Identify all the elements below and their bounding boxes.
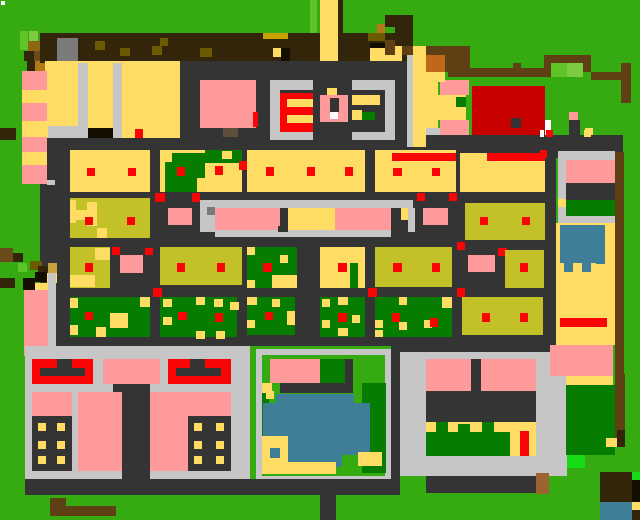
map-rect [215, 230, 391, 237]
map-rect [338, 263, 347, 272]
map-rect [440, 80, 469, 95]
map-rect [27, 61, 35, 71]
map-rect [216, 441, 224, 449]
map-rect [621, 63, 631, 103]
map-rect [194, 423, 202, 431]
map-rect [566, 183, 615, 200]
map-rect [392, 153, 456, 161]
map-rect [78, 392, 122, 471]
map-rect [270, 132, 313, 140]
map-rect [385, 15, 413, 27]
monument-left [270, 80, 313, 90]
map-rect [200, 48, 212, 57]
map-rect [57, 423, 65, 431]
map-rect [393, 263, 402, 272]
map-rect [569, 120, 580, 135]
map-rect [408, 208, 415, 232]
map-rect [263, 33, 288, 39]
map-rect [338, 297, 348, 305]
map-rect [50, 498, 66, 516]
map-rect [436, 422, 448, 432]
map-rect [546, 130, 553, 137]
south-road [320, 491, 336, 520]
map-rect [567, 455, 585, 468]
map-rect [550, 345, 613, 376]
map-rect [263, 263, 272, 272]
map-rect [448, 68, 546, 77]
map-rect [178, 312, 187, 320]
block [160, 247, 242, 285]
map-rect [399, 322, 407, 330]
map-rect [350, 263, 358, 288]
map-rect [287, 115, 313, 123]
map-rect [551, 63, 567, 77]
map-rect [145, 248, 153, 255]
map-rect [540, 150, 547, 158]
map-rect [368, 33, 385, 41]
map-rect [110, 313, 128, 328]
map-rect [375, 320, 383, 328]
map-rect [247, 320, 255, 328]
map-rect [216, 331, 225, 339]
map-rect [352, 95, 380, 105]
map-rect [217, 263, 225, 272]
map-rect [38, 456, 46, 464]
block [375, 297, 452, 337]
map-rect [430, 318, 438, 327]
map-rect [520, 313, 528, 322]
map-rect [0, 128, 16, 140]
map-rect [48, 263, 57, 273]
map-rect [456, 97, 466, 107]
map-rect [564, 263, 573, 272]
map-rect [24, 51, 34, 61]
map-rect [135, 129, 143, 138]
map-rect [28, 41, 40, 51]
map-rect [48, 126, 78, 138]
map-rect [22, 152, 47, 165]
map-rect [70, 298, 78, 308]
map-rect [322, 299, 330, 307]
map-rect [270, 90, 280, 132]
map-rect [0, 248, 13, 262]
map-rect [265, 312, 273, 320]
map-rect [606, 438, 617, 447]
map-rect [38, 441, 46, 449]
map-rect [120, 255, 143, 273]
map-rect [426, 359, 471, 391]
map-rect [85, 312, 93, 320]
map-rect [584, 130, 591, 137]
map-rect [85, 263, 93, 272]
map-rect [566, 200, 615, 216]
map-rect [520, 431, 529, 456]
map-rect [230, 302, 239, 310]
map-rect [393, 168, 402, 176]
map-rect [632, 472, 640, 480]
map-rect [194, 456, 202, 464]
map-rect [247, 297, 257, 305]
map-dot [1, 1, 5, 5]
map-rect [458, 424, 470, 432]
map-rect [385, 40, 395, 55]
map-rect [223, 128, 238, 137]
map-rect [140, 297, 150, 307]
map-rect [307, 167, 315, 176]
map-rect [426, 391, 536, 422]
map-rect [188, 392, 231, 416]
map-rect [617, 430, 625, 447]
map-rect [432, 168, 440, 176]
map-rect [57, 441, 65, 449]
map-rect [70, 275, 95, 287]
map-rect [481, 359, 536, 391]
map-rect [270, 448, 280, 458]
map-rect [513, 63, 521, 70]
map-rect [596, 255, 605, 264]
map-rect [432, 263, 440, 272]
map-rect [482, 422, 494, 432]
map-rect [222, 151, 232, 159]
map-rect [78, 63, 88, 138]
map-rect [163, 317, 172, 325]
map-rect [569, 112, 578, 120]
map-rect [128, 168, 136, 176]
map-rect [127, 217, 135, 225]
map-rect [20, 31, 28, 41]
map-rect [57, 456, 65, 464]
map-rect [320, 359, 345, 383]
map-rect [95, 41, 105, 50]
west-strip [22, 71, 47, 90]
map-rect [103, 359, 160, 384]
map-rect [29, 31, 38, 41]
east-road [413, 46, 426, 147]
map-rect [266, 167, 274, 176]
map-rect [322, 320, 330, 328]
map-rect [216, 423, 224, 431]
map-rect [70, 325, 78, 335]
map-rect [457, 242, 465, 250]
city-map[interactable] [0, 0, 640, 520]
map-rect [266, 391, 274, 399]
map-rect [583, 63, 591, 72]
map-rect [358, 452, 382, 466]
monument-right [352, 80, 395, 90]
map-rect [352, 315, 360, 323]
map-rect [278, 226, 288, 232]
map-rect [177, 167, 185, 176]
map-rect [113, 63, 122, 138]
map-rect [487, 153, 545, 161]
map-rect [23, 278, 35, 290]
map-rect [215, 208, 280, 232]
map-rect [38, 423, 46, 431]
block [462, 297, 543, 335]
map-rect [582, 263, 591, 272]
map-rect [97, 228, 107, 238]
map-rect [253, 112, 258, 127]
map-rect [22, 121, 47, 137]
map-rect [122, 384, 150, 479]
map-rect [40, 368, 85, 376]
map-rect [207, 207, 215, 215]
map-rect [247, 247, 255, 255]
map-rect [352, 132, 395, 140]
map-rect [112, 247, 120, 255]
map-rect [567, 63, 583, 77]
map-rect [442, 297, 452, 308]
map-rect [88, 128, 113, 138]
map-rect [160, 38, 168, 46]
plaza-building [200, 80, 256, 128]
map-rect [0, 278, 15, 288]
map-rect [310, 0, 317, 33]
map-rect [558, 199, 566, 207]
map-rect [192, 193, 200, 202]
map-rect [196, 331, 205, 339]
block [465, 203, 545, 240]
map-rect [85, 217, 93, 225]
map-rect [330, 98, 339, 112]
map-rect [57, 359, 72, 368]
map-rect [96, 327, 106, 337]
map-rect [280, 255, 288, 263]
map-rect [215, 313, 223, 322]
red-building [472, 86, 545, 135]
gray-building [57, 38, 78, 63]
map-rect [377, 24, 385, 33]
map-rect [155, 193, 165, 202]
map-rect [288, 208, 335, 230]
map-rect [190, 359, 205, 368]
map-rect [335, 208, 391, 232]
map-rect [196, 297, 205, 305]
map-rect [330, 112, 338, 119]
map-rect [35, 272, 47, 282]
map-rect [468, 255, 495, 272]
map-rect [280, 383, 353, 393]
map-rect [471, 359, 481, 391]
map-rect [288, 462, 336, 474]
map-rect [362, 112, 375, 120]
map-rect [168, 208, 192, 225]
map-rect [423, 208, 448, 225]
map-rect [152, 46, 162, 55]
map-rect [391, 346, 400, 493]
map-rect [632, 480, 640, 502]
map-rect [520, 263, 528, 272]
map-rect [25, 479, 400, 495]
stadium [200, 200, 413, 208]
map-rect [482, 313, 490, 322]
map-rect [32, 392, 72, 416]
tree-trunk [536, 473, 549, 494]
map-rect [457, 288, 465, 297]
map-rect [287, 99, 313, 107]
map-rect [480, 217, 488, 225]
north-road [320, 0, 338, 63]
map-rect [272, 275, 297, 288]
map-rect [368, 288, 377, 297]
block [70, 150, 150, 192]
map-rect [426, 476, 548, 493]
map-rect [239, 161, 247, 170]
map-rect [22, 90, 47, 103]
map-rect [247, 280, 255, 288]
map-rect [600, 502, 632, 520]
map-rect [370, 43, 385, 48]
map-rect [163, 299, 172, 307]
map-rect [18, 263, 27, 272]
map-rect [214, 299, 223, 307]
map-rect [273, 48, 281, 57]
tree-line [615, 152, 624, 374]
map-rect [197, 178, 207, 192]
map-rect [392, 313, 400, 322]
map-rect [120, 48, 130, 56]
map-rect [13, 253, 23, 262]
map-rect [48, 273, 56, 356]
map-rect [426, 432, 510, 456]
map-rect [22, 165, 47, 184]
map-rect [522, 217, 530, 225]
map-rect [449, 193, 457, 201]
map-rect [385, 90, 395, 132]
map-rect [270, 359, 320, 383]
map-rect [440, 120, 469, 135]
map-rect [401, 208, 408, 220]
map-rect [391, 226, 401, 232]
map-rect [600, 472, 632, 502]
map-rect [176, 368, 221, 376]
map-rect [215, 166, 223, 175]
map-rect [375, 330, 383, 337]
map-rect [113, 384, 150, 392]
map-rect [66, 506, 116, 516]
map-rect [395, 27, 413, 35]
map-rect [352, 110, 362, 120]
map-rect [22, 103, 47, 121]
map-rect [22, 137, 47, 152]
map-rect [216, 456, 224, 464]
door [511, 118, 521, 128]
map-rect [194, 441, 202, 449]
map-rect [47, 180, 55, 185]
map-rect [160, 150, 172, 162]
map-rect [150, 392, 188, 471]
map-rect [425, 55, 445, 72]
map-rect [153, 288, 162, 297]
map-rect [35, 283, 48, 290]
map-rect [417, 193, 425, 201]
map-rect [338, 328, 348, 336]
map-rect [566, 160, 615, 183]
map-rect [272, 299, 280, 307]
map-rect [95, 248, 110, 260]
map-rect [632, 510, 640, 520]
map-rect [87, 168, 95, 176]
map-rect [20, 41, 28, 50]
map-rect [540, 130, 544, 137]
map-rect [177, 263, 185, 272]
map-rect [399, 297, 407, 305]
map-rect [287, 311, 295, 325]
map-rect [415, 72, 445, 82]
map-rect [345, 167, 353, 176]
map-rect [560, 318, 607, 327]
map-rect [338, 313, 347, 322]
block [375, 247, 452, 287]
